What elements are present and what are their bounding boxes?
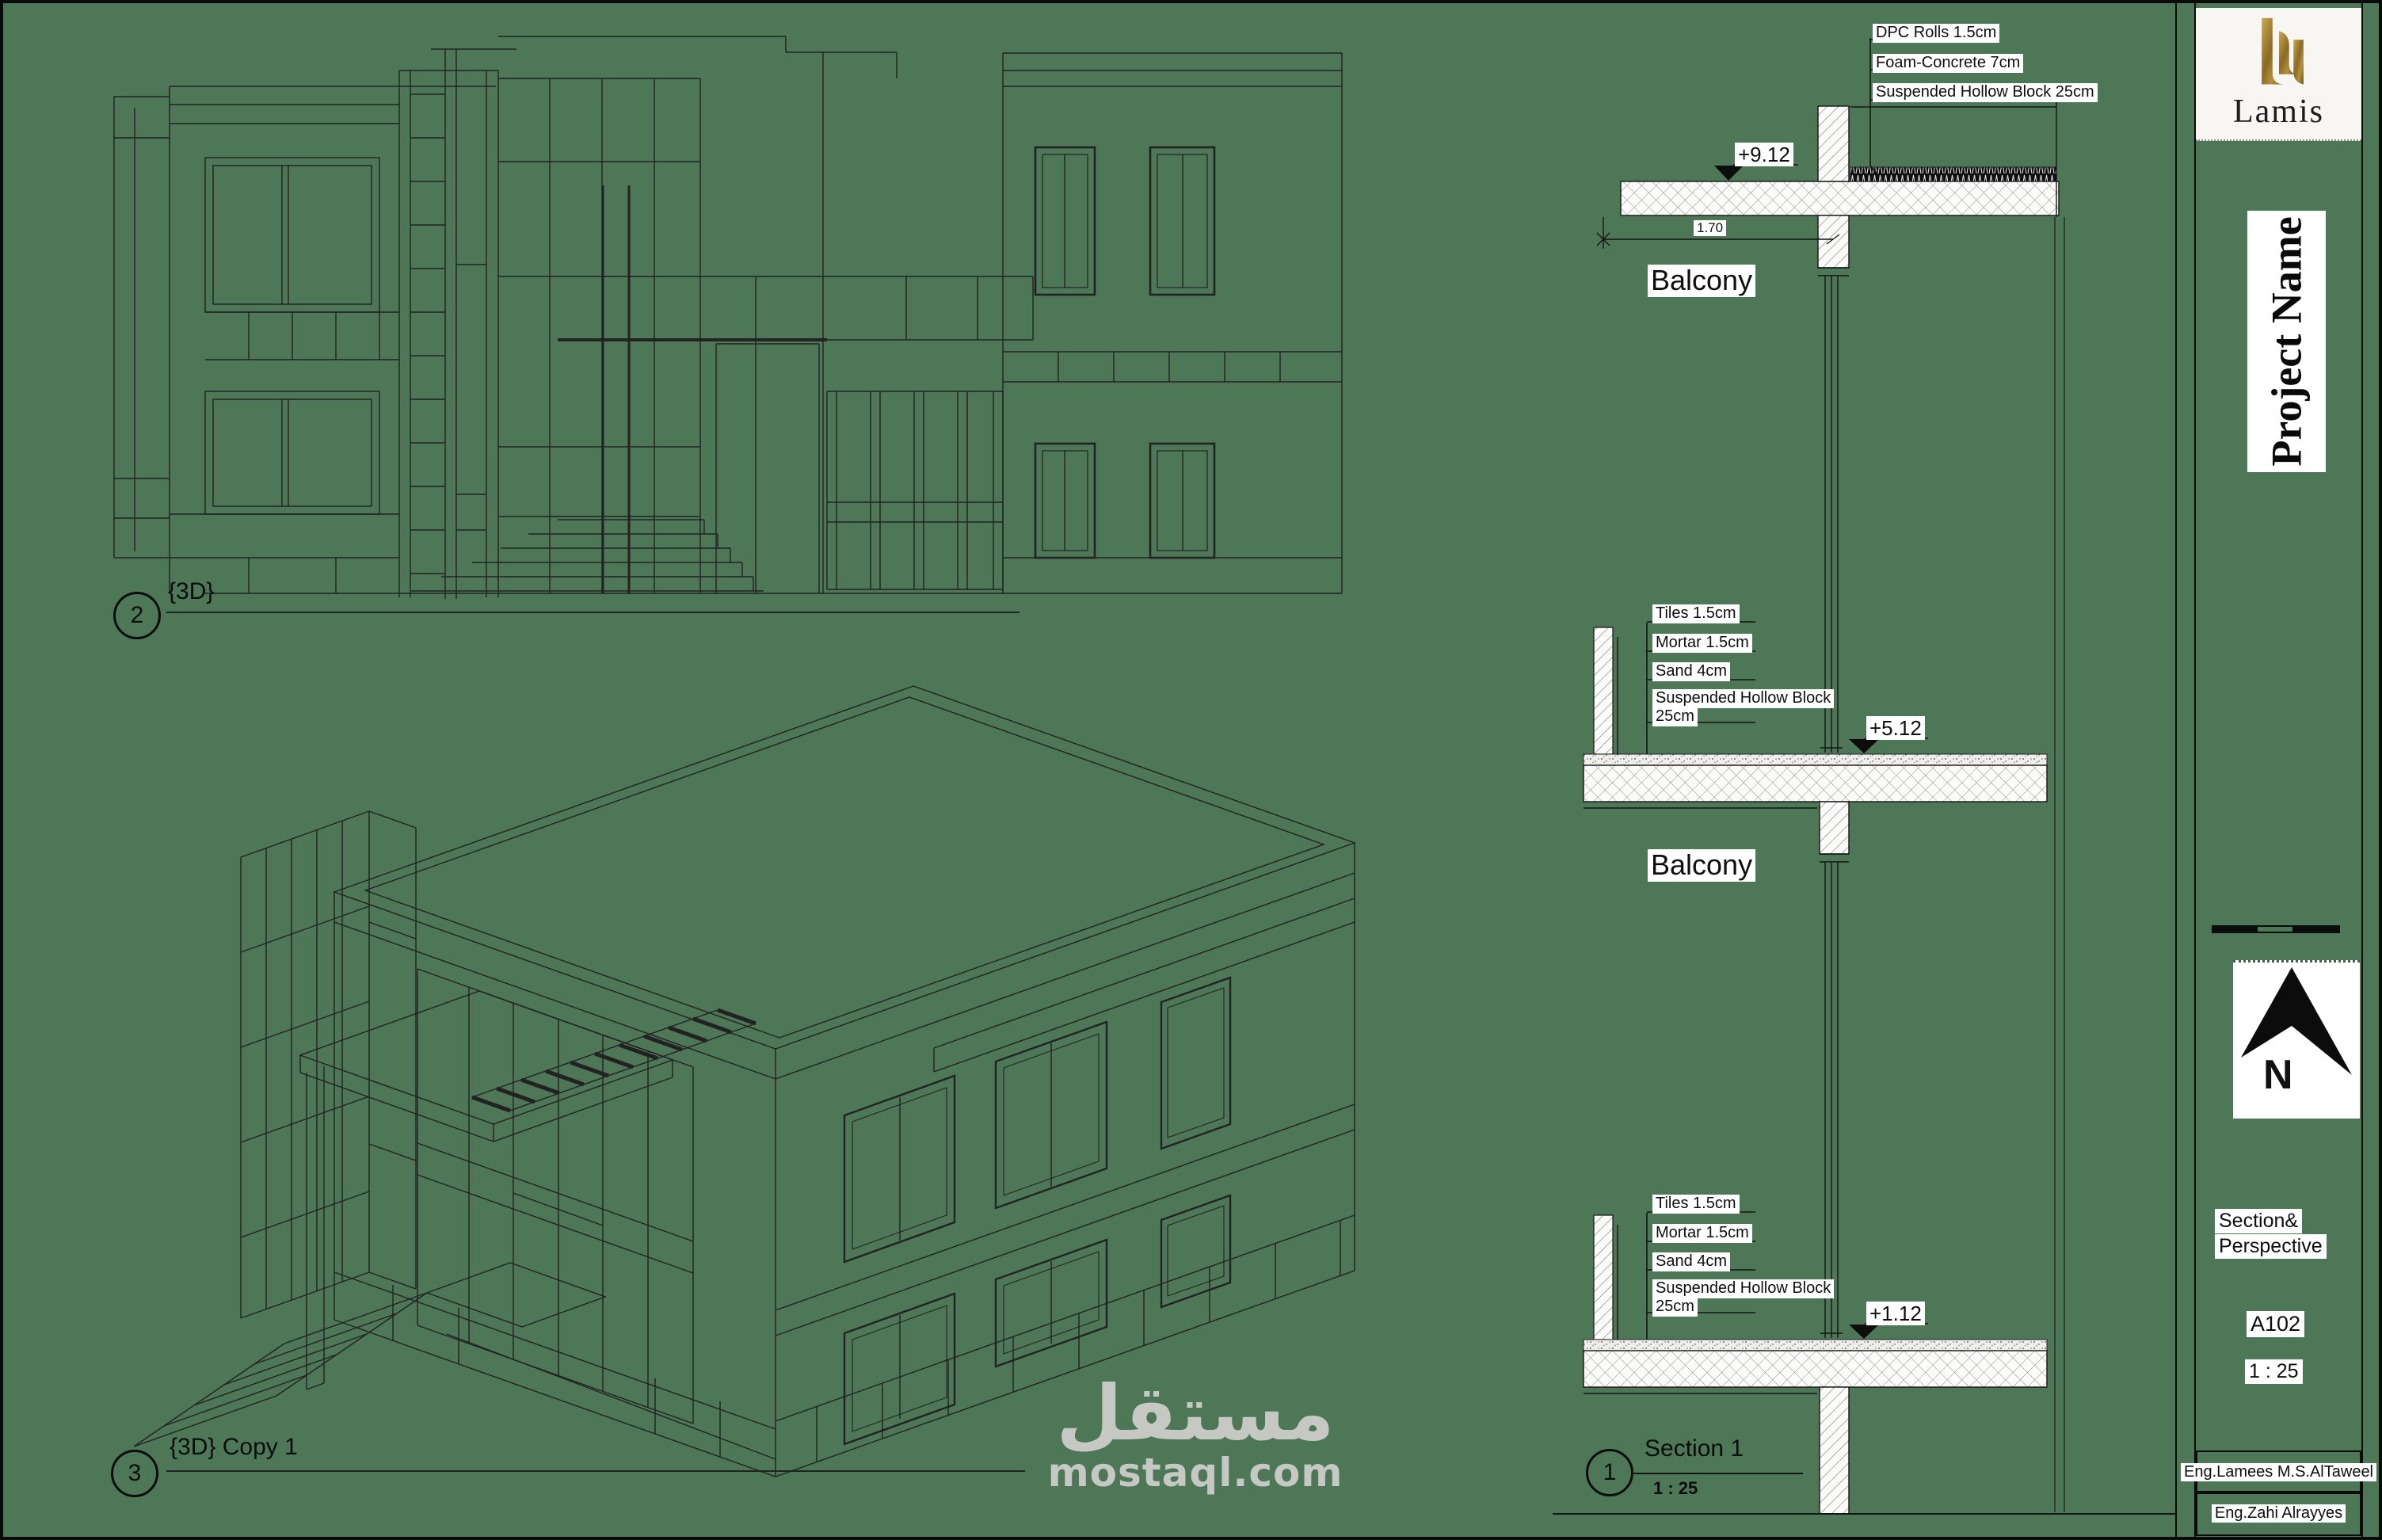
brand-name: Lamis [2233, 93, 2324, 131]
titleblock-separator [2212, 925, 2340, 933]
north-arrow-icon [2233, 962, 2360, 1081]
callout-foam-concrete: Foam-Concrete 7cm [1873, 54, 2023, 73]
view-title-elevation: {3D} [168, 578, 214, 605]
view-bubble-elevation: 2 [113, 592, 161, 639]
project-name-text: Project Name [2262, 216, 2311, 466]
callout-hollow-block-f1-cm: 25cm [1652, 1298, 1698, 1317]
sheet-title-line2: Perspective [2215, 1234, 2327, 1259]
callout-hollow-block-f2-cm: 25cm [1652, 707, 1698, 726]
axon-view-linework [134, 686, 1355, 1477]
engineer-row-1: Eng.Lamees M.S.AlTaweel [2196, 1450, 2361, 1494]
level-marker-second: +5.12 [1866, 716, 1925, 740]
callout-hollow-block-f1: Suspended Hollow Block [1652, 1279, 1834, 1298]
callout-dpc-rolls: DPC Rolls 1.5cm [1873, 24, 1999, 43]
titleblock-divider-outer [2175, 3, 2177, 1537]
lamis-monogram-icon [2243, 17, 2315, 96]
north-letter: N [2263, 1051, 2293, 1099]
engineer-row-2: Eng.Zahi Alrayyes [2196, 1491, 2361, 1536]
room-label-balcony-upper: Balcony [1648, 265, 1755, 297]
north-arrow-box: N [2233, 960, 2360, 1119]
sheet-title-line1: Section& [2215, 1209, 2302, 1233]
titleblock-divider-right [2361, 3, 2363, 1537]
view-title-section: Section 1 [1645, 1435, 1744, 1462]
callout-mortar-f2: Mortar 1.5cm [1652, 634, 1752, 653]
view-scale-section: 1 : 25 [1653, 1478, 1698, 1499]
watermark-arabic: مستقل [1033, 1375, 1358, 1451]
callout-tiles-f1: Tiles 1.5cm [1652, 1195, 1740, 1214]
engineer-1-name: Eng.Lamees M.S.AlTaweel [2181, 1463, 2376, 1481]
elevation-view-linework [114, 36, 1342, 612]
company-logo: Lamis [2196, 8, 2361, 141]
watermark: مستقل mostaql.com [1033, 1375, 1358, 1492]
sheet-number: A102 [2247, 1311, 2304, 1337]
level-marker-first: +1.12 [1866, 1302, 1925, 1325]
project-name-strip: Project Name [2247, 211, 2326, 472]
view-bubble-section: 1 [1586, 1449, 1633, 1496]
callout-sand-f2: Sand 4cm [1652, 662, 1730, 681]
titleblock-divider-inner [2194, 3, 2196, 1537]
cad-linework [3, 3, 2382, 1540]
level-marker-roof: +9.12 [1735, 143, 1793, 166]
watermark-url: mostaql.com [1033, 1453, 1358, 1492]
callout-tiles-f2: Tiles 1.5cm [1652, 604, 1740, 623]
dimension-value: 1.70 [1694, 220, 1726, 236]
callout-hollow-block-f2: Suspended Hollow Block [1652, 689, 1834, 708]
callout-sand-f1: Sand 4cm [1652, 1252, 1730, 1271]
separator-notch [2258, 927, 2292, 932]
view-bubble-axon: 3 [111, 1450, 158, 1497]
drawing-sheet: DPC Rolls 1.5cm Foam-Concrete 7cm Suspen… [0, 0, 2382, 1540]
room-label-balcony-lower: Balcony [1648, 849, 1755, 882]
callout-hollow-block-roof: Suspended Hollow Block 25cm [1873, 83, 2098, 102]
engineer-2-name: Eng.Zahi Alrayyes [2212, 1504, 2346, 1523]
section-view-linework [1553, 38, 2175, 1514]
callout-mortar-f1: Mortar 1.5cm [1652, 1224, 1752, 1243]
sheet-scale: 1 : 25 [2245, 1359, 2303, 1384]
view-title-axon: {3D} Copy 1 [170, 1434, 298, 1461]
